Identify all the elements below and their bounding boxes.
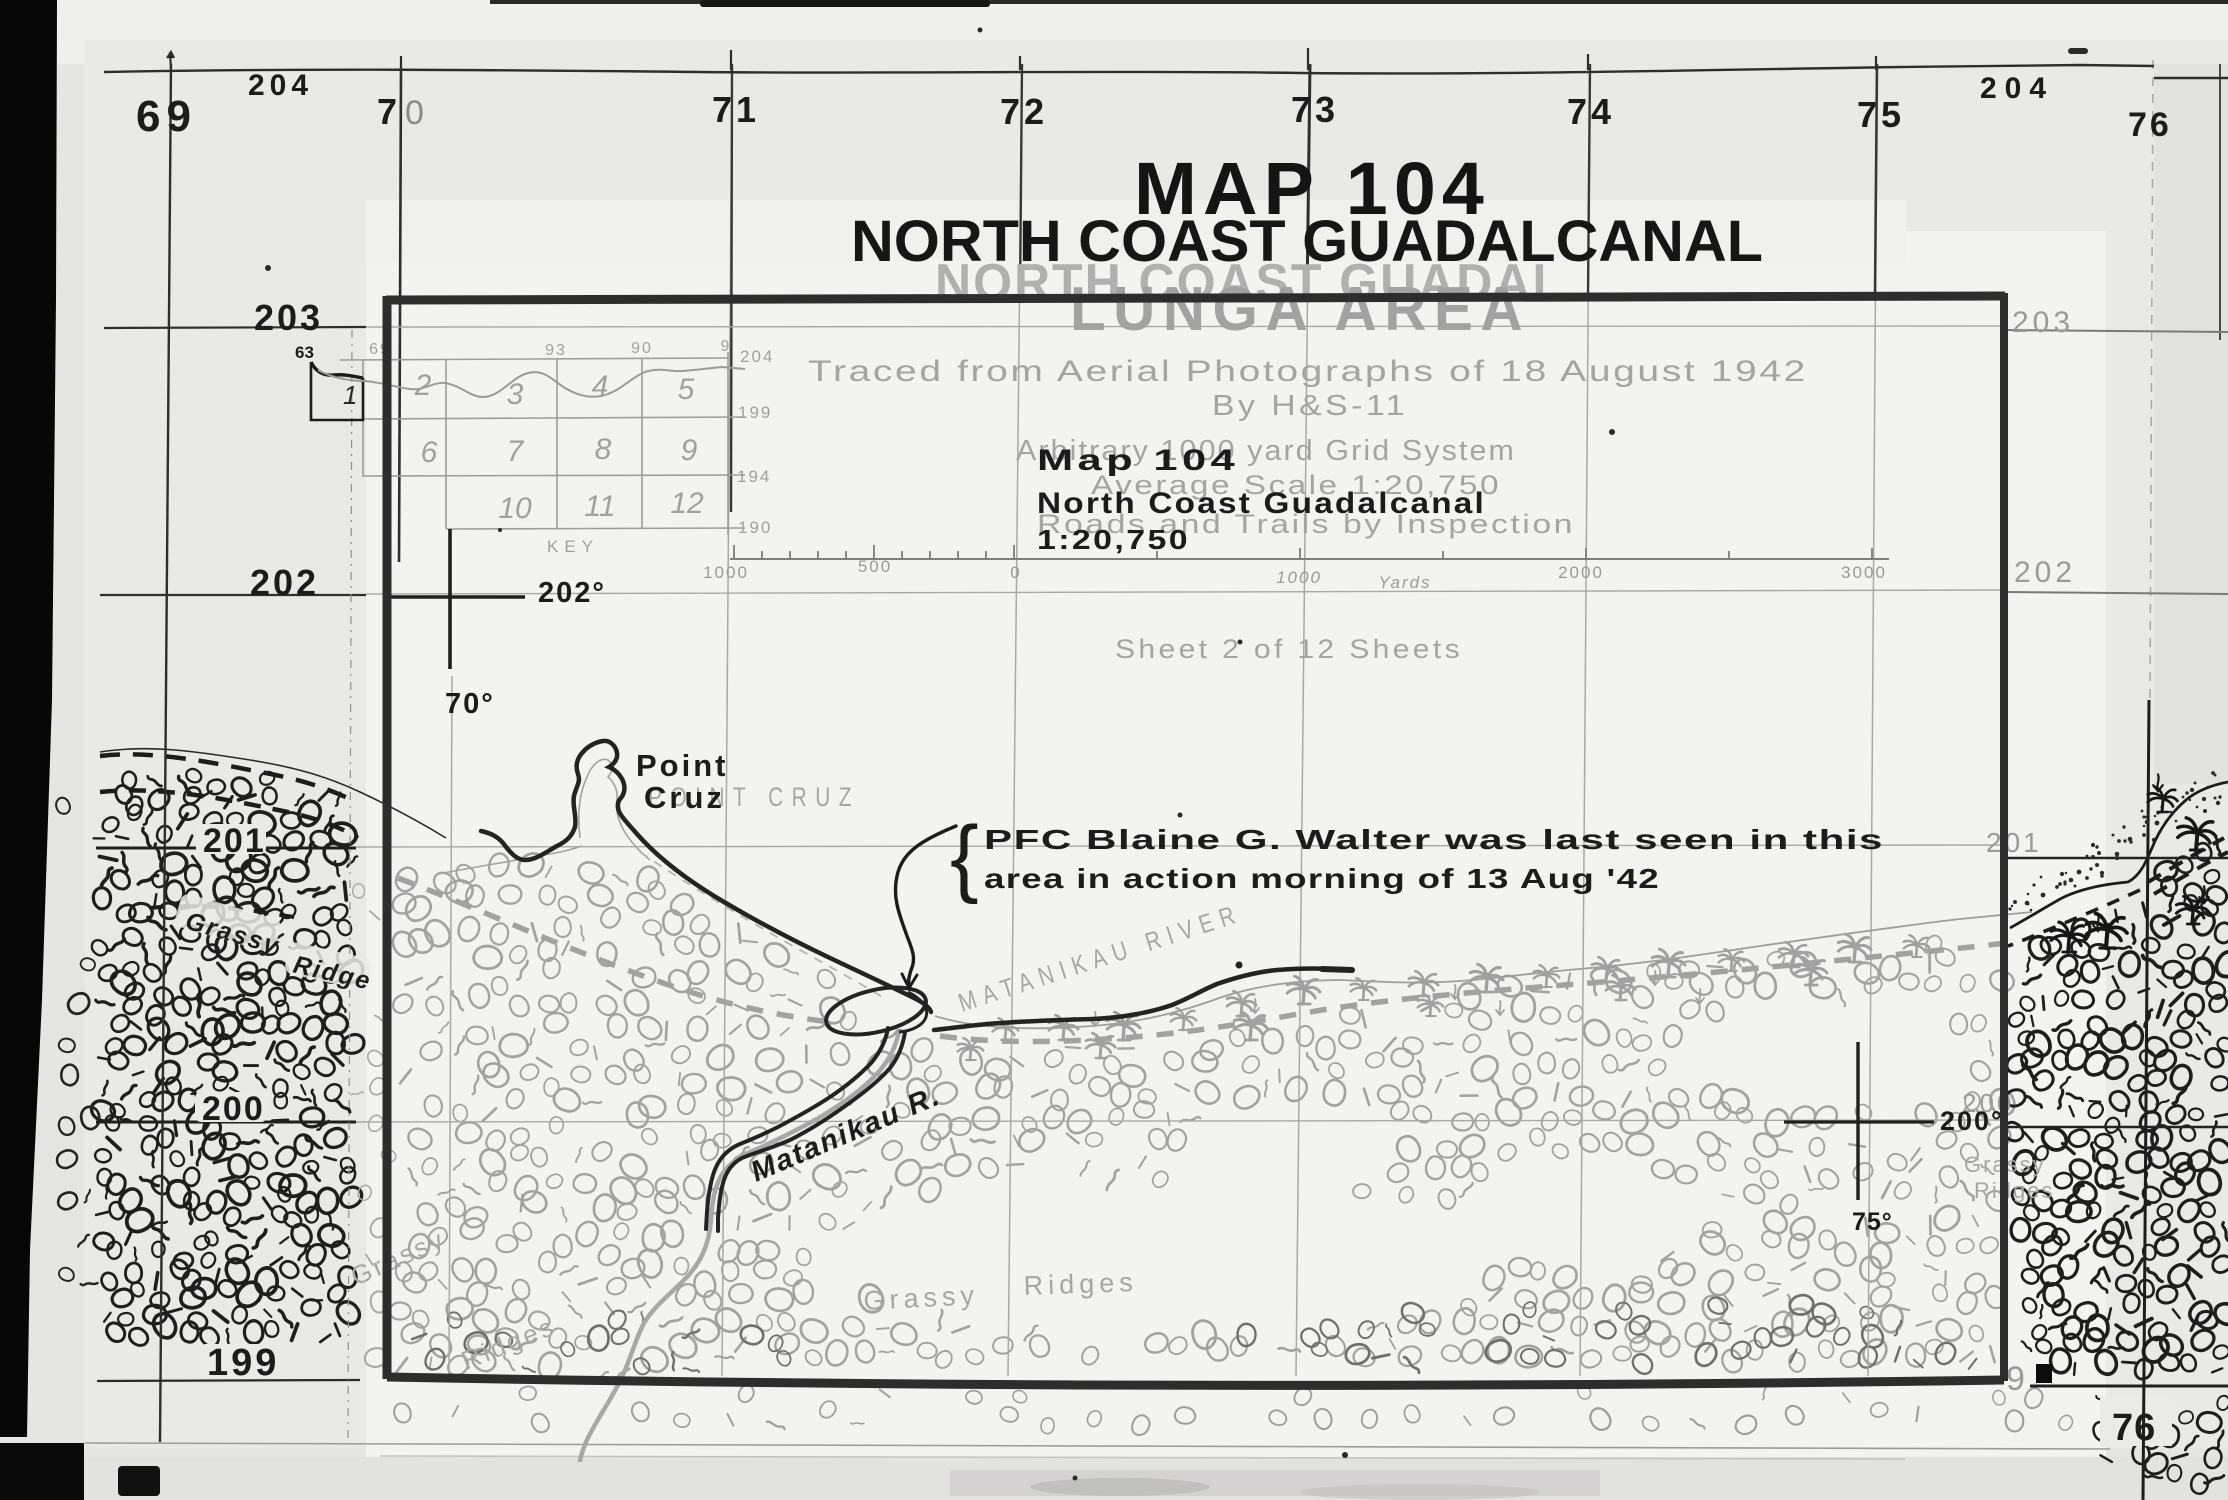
svg-text:KEY: KEY [547, 537, 599, 556]
svg-text:area in action morning of: area in action morning of 13 Aug '42 [984, 863, 1660, 894]
svg-text:Point: Point [636, 748, 729, 783]
svg-text:2: 2 [414, 369, 432, 402]
svg-text:5: 5 [678, 373, 695, 406]
svg-text:202: 202 [2014, 556, 2076, 589]
svg-text:8: 8 [595, 433, 612, 466]
svg-text:Ridges: Ridges [1023, 1267, 1138, 1301]
svg-text:194: 194 [737, 467, 771, 486]
svg-text:200: 200 [202, 1090, 265, 1128]
svg-text:11: 11 [584, 490, 615, 523]
svg-text:202°: 202° [538, 577, 606, 609]
svg-text:200°: 200° [1940, 1106, 2004, 1136]
svg-text:1:20,750: 1:20,750 [1037, 524, 1190, 555]
svg-text:76: 76 [2112, 1407, 2156, 1449]
svg-text:1000: 1000 [703, 563, 749, 582]
svg-text:74: 74 [1567, 91, 1615, 132]
svg-text:Map 104: Map 104 [1037, 444, 1239, 477]
svg-text:12: 12 [670, 487, 704, 520]
svg-text:PFC Blaine G. Walter was las: PFC Blaine G. Walter was last seen in th… [984, 824, 1884, 855]
svg-text:63: 63 [295, 343, 314, 362]
svg-text:3: 3 [507, 378, 524, 411]
svg-text:{: { [950, 809, 979, 905]
svg-text:LUNGA AREA: LUNGA AREA [1070, 275, 1530, 344]
svg-text:NORTH COAST GUADALCANAL: NORTH COAST GUADALCANAL [851, 209, 1763, 274]
svg-text:199: 199 [207, 1342, 279, 1384]
svg-text:76: 76 [2128, 106, 2172, 144]
svg-text:Ridges: Ridges [1974, 1178, 2054, 1203]
svg-text:6: 6 [421, 436, 438, 469]
svg-text:199: 199 [738, 403, 772, 422]
svg-text:500: 500 [858, 557, 892, 576]
svg-text:7: 7 [377, 91, 397, 132]
svg-text:9: 9 [681, 434, 698, 467]
svg-text:73: 73 [1291, 89, 1339, 130]
svg-text:7: 7 [507, 435, 525, 468]
svg-text:190: 190 [738, 518, 772, 537]
svg-text:Yards: Yards [1378, 573, 1431, 592]
svg-text:90: 90 [631, 340, 653, 357]
svg-text:0: 0 [1010, 563, 1021, 582]
svg-text:Cruz: Cruz [644, 780, 725, 815]
svg-text:204: 204 [248, 69, 313, 102]
svg-text:202: 202 [250, 562, 319, 603]
svg-text:Sheet 2 of 12 Sheets: Sheet 2 of 12 Sheets [1115, 634, 1463, 664]
svg-text:3000: 3000 [1841, 563, 1887, 582]
svg-text:201: 201 [203, 822, 266, 860]
svg-text:9: 9 [721, 338, 732, 355]
svg-text:4: 4 [592, 370, 609, 403]
svg-text:Traced from Aerial Photographs: Traced from Aerial Photographs of 18 Aug… [808, 355, 1808, 388]
svg-text:75: 75 [1857, 94, 1905, 135]
svg-text:By H&S-11: By H&S-11 [1212, 390, 1408, 422]
svg-text:69: 69 [136, 92, 197, 141]
svg-text:93: 93 [545, 342, 567, 359]
svg-text:Grassy: Grassy [863, 1280, 980, 1316]
svg-text:72: 72 [1000, 91, 1048, 132]
svg-text:75°: 75° [1852, 1208, 1893, 1236]
svg-text:203: 203 [254, 297, 323, 338]
svg-text:0: 0 [405, 94, 424, 132]
svg-text:1: 1 [343, 380, 357, 410]
svg-text:9: 9 [2006, 1360, 2025, 1398]
svg-text:70°: 70° [445, 688, 495, 720]
svg-text:71: 71 [712, 89, 760, 130]
svg-text:1000: 1000 [1276, 568, 1322, 587]
svg-text:204: 204 [1980, 72, 2054, 105]
svg-text:204: 204 [740, 347, 774, 366]
svg-text:203: 203 [2012, 306, 2074, 339]
svg-text:201: 201 [1986, 827, 2042, 858]
svg-text:10: 10 [498, 492, 532, 525]
svg-text:2000: 2000 [1558, 563, 1604, 582]
svg-text:North Coast Guadalcanal: North Coast Guadalcanal [1037, 487, 1486, 520]
